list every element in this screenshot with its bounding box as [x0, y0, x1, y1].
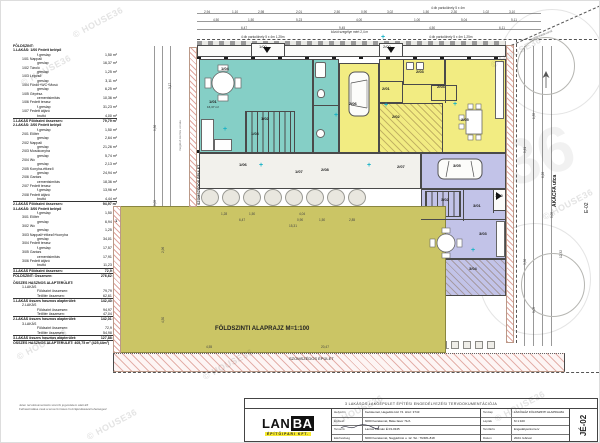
- project-title: 3 LAKÁSOS LAKÓÉPÜLET ÉPÍTÉSI ENGEDÉLYEZÉ…: [245, 399, 597, 409]
- dim-number: 1,00: [414, 18, 420, 22]
- room-label: 3/05: [453, 164, 461, 168]
- room-label: 1/02: [261, 117, 269, 121]
- pavement-texture: [197, 41, 506, 45]
- survey-cross-icon: +: [384, 103, 388, 108]
- drawing-sheet: FÖLDSZINT:1.LAKÁS: 1/00 Fedett belépőf.g…: [0, 0, 600, 443]
- washer-icon: [406, 62, 414, 70]
- room-label: 4 db parkolóhely 5 x 4m 1,25m: [429, 36, 473, 40]
- sheet-number: JÉ-02: [579, 415, 588, 436]
- sofa-icon: [201, 119, 214, 151]
- dim-number: 2,50: [334, 10, 340, 14]
- boundary-garden-left: [113, 206, 121, 353]
- north-arrow-icon: [539, 71, 553, 89]
- dim-number: 4,00: [356, 18, 362, 22]
- dim-number: 1,50: [319, 218, 325, 222]
- dim-number: 3,02: [387, 10, 393, 14]
- dim-number: 1,10: [232, 10, 238, 14]
- logo-text-ba: BA: [291, 416, 314, 431]
- titleblock-info-row: Elérhetőség6000 Kecskemét, Nagykőrösi u.…: [332, 435, 480, 443]
- room-label: 2/03: [416, 70, 424, 74]
- room-label: 16,37 m²: [207, 106, 219, 109]
- room-label: közút szegélye mért 2,4 m: [331, 31, 368, 35]
- survey-cross-icon: +: [223, 127, 227, 132]
- logo-text-lan: LAN: [262, 416, 290, 431]
- dim-number: 4,50: [213, 18, 219, 22]
- dim-number: 12,32: [559, 250, 563, 258]
- sheet-number-cell: JÉ-02: [570, 409, 597, 442]
- titleblock-meta-value: 2024. február: [512, 435, 569, 443]
- dim-number: 3,10: [509, 10, 515, 14]
- dining-table-icon: [429, 227, 463, 259]
- titleblock-info-value: Kecskemét, Hegedűs köz 74. Hrsz: 3743: [363, 409, 480, 417]
- room-label: 3/04: [469, 267, 477, 271]
- dim-number: 1,50: [248, 18, 254, 22]
- bush-icon: [243, 189, 261, 206]
- sink-icon: [316, 129, 325, 138]
- section-marker: 1: [115, 219, 117, 223]
- dim-number: 1,28: [221, 212, 227, 216]
- dim-number: 2,96: [161, 247, 165, 253]
- toilet-icon: [317, 89, 325, 98]
- wall: [445, 59, 446, 103]
- survey-cross-icon: +: [367, 163, 371, 168]
- dim-number: 5,23: [296, 18, 302, 22]
- signature-icon: [340, 423, 380, 431]
- room-2-01: [379, 81, 403, 103]
- boundary-line-bottom: [113, 372, 599, 373]
- sheet-edge-number: E-02: [585, 202, 591, 213]
- dim-number: 1,50: [249, 212, 255, 216]
- dim-number: 2,85: [349, 218, 355, 222]
- fence-right: [506, 45, 514, 343]
- wall: [421, 219, 506, 220]
- titleblock-meta-value: Engedélyezési terv: [512, 426, 569, 434]
- paver-icon: [475, 341, 483, 349]
- room-label: 4 db parkolóhely 5 x 4m: [431, 7, 465, 11]
- wall: [463, 189, 464, 221]
- room-label: 2/07: [397, 165, 405, 169]
- dim-line: [197, 29, 541, 30]
- titleblock-meta-row: TervfázisEngedélyezési terv: [481, 426, 569, 435]
- paver-icon: [487, 341, 495, 349]
- dim-number: 6,47: [241, 26, 247, 30]
- plan-title: FÖLDSZINTI ALAPRAJZ M=1:100: [215, 326, 309, 333]
- street-label: AKÁCFA utca: [553, 175, 559, 207]
- dim-number: 6,28: [541, 172, 545, 178]
- logo-subtitle: ÉPÍTŐIPARI KFT.: [265, 432, 311, 436]
- survey-cross-icon: +: [471, 248, 475, 253]
- dim-number: 5,61: [523, 147, 527, 153]
- room-label: 2/02: [392, 115, 400, 119]
- kitchen-counter: [495, 61, 504, 119]
- titleblock-meta-label: Tervfázis: [481, 426, 512, 434]
- neighbor-left-label: SZOMSZÉDOS ÉPÜLET: [198, 165, 202, 205]
- titleblock-info-value: Lantos Kálmán É 03-0345: [363, 426, 480, 434]
- bush-icon: [285, 189, 303, 206]
- room-label: 2/08: [321, 168, 329, 172]
- titleblock-meta-label: Dátum: [481, 435, 512, 443]
- dim-number: 15,31: [289, 224, 297, 228]
- room-label: 2/00: [383, 45, 391, 49]
- dim-number: 2,94: [204, 10, 210, 14]
- dim-number: 2,30: [451, 10, 457, 14]
- dim-number: 1,35: [532, 113, 536, 119]
- room-label: 1/06: [239, 163, 247, 167]
- bathtub-icon: [315, 62, 326, 78]
- bush-icon: [327, 189, 345, 206]
- room-label: 2/06: [349, 102, 357, 106]
- room-label: 1/03: [251, 132, 259, 136]
- terrace-band: [199, 153, 421, 189]
- room-label: 3/03: [479, 232, 487, 236]
- dim-number: 4,50: [429, 26, 435, 30]
- room-label: 1/07: [295, 170, 303, 174]
- room-label: 3/00: [495, 194, 503, 198]
- wall: [493, 189, 494, 213]
- room-label: 2/01: [382, 87, 390, 91]
- titleblock-info-value: 6000 Kecskemét, Béke fasor 71/A: [363, 418, 480, 426]
- dim-number: 3,17: [168, 83, 172, 89]
- dim-number: 5,11: [511, 18, 517, 22]
- titleblock-info-label: Elérhetőség: [332, 435, 363, 443]
- bush-icon: [348, 189, 366, 206]
- survey-cross-icon: +: [334, 113, 338, 118]
- dim-number: 6,11: [499, 26, 505, 30]
- dim-number: 4,55: [206, 345, 212, 349]
- dim-line: [197, 13, 541, 14]
- dim-number: 5,05: [153, 200, 157, 206]
- neighbor-bottom-strip: [113, 353, 565, 372]
- dim-number: 3,36: [523, 259, 527, 265]
- neighbor-bottom-label: SZOMSZÉDOS ÉPÜLET: [289, 357, 334, 361]
- room-label: 2/04: [437, 85, 445, 89]
- copyright-line: Felhasználása csak a tervező írásos hozz…: [19, 408, 139, 412]
- titleblock-info-value: 6000 Kecskemét, Nagykőrösi u. 12. Tel.: …: [363, 435, 480, 443]
- sofa-icon: [214, 139, 232, 151]
- pavement-top: [197, 45, 506, 57]
- copyright-note: Jelen tervdokumentáció szerzői jogvédele…: [19, 404, 139, 412]
- room-label: 3/02: [441, 198, 449, 202]
- titleblock-meta-value: M 1:100: [512, 418, 569, 426]
- dim-number: 9,45: [339, 26, 345, 30]
- dim-number: 1,50: [423, 10, 429, 14]
- wall: [313, 105, 339, 106]
- room-label: 1/00: [259, 45, 267, 49]
- dim-number: 0,90: [297, 218, 303, 222]
- dim-number: 2,98: [258, 10, 264, 14]
- room-label: 1/04: [221, 67, 229, 71]
- dim-number: 1,02: [483, 10, 489, 14]
- kitchen-counter: [496, 221, 505, 257]
- survey-cross-icon: +: [453, 102, 457, 107]
- survey-cross-icon: +: [381, 35, 385, 40]
- paver-icon: [463, 341, 471, 349]
- floor-plan: 36: [1, 1, 600, 443]
- bush-icon: [201, 189, 219, 206]
- boundary-left-wall: [189, 47, 197, 207]
- car-icon: [348, 71, 370, 117]
- bush-icon: [306, 189, 324, 206]
- dim-number: 2,01: [296, 10, 302, 14]
- dim-number: 20,47: [321, 345, 329, 349]
- room-label: 1/01: [209, 100, 217, 104]
- room-label: 4 db parkolóhely 5 x 4m 1,25m: [241, 36, 285, 40]
- bush-icon: [264, 189, 282, 206]
- company-logo: LAN BA ÉPÍTŐIPARI KFT.: [245, 409, 332, 442]
- bush-icon: [222, 189, 240, 206]
- paver-icon: [451, 341, 459, 349]
- car-icon: [437, 158, 483, 180]
- tree-icon: [521, 253, 585, 317]
- survey-cross-icon: +: [259, 163, 263, 168]
- dim-number: 4,50: [161, 317, 165, 323]
- dim-number: 4,04: [299, 212, 305, 216]
- room-label: meglévő kerítés vonala: [179, 120, 182, 151]
- dim-number: 9,36: [153, 125, 157, 131]
- title-block: 3 LAKÁSOS LAKÓÉPÜLET ÉPÍTÉSI ENGEDÉLYEZÉ…: [244, 398, 598, 442]
- room-label: 2/05: [461, 118, 469, 122]
- dim-number: 5,05: [532, 307, 536, 313]
- dim-number: 0,90: [361, 10, 367, 14]
- room-2-02: [379, 103, 443, 153]
- dim-number: 5,04: [461, 18, 467, 22]
- room-label: 3/01: [473, 204, 481, 208]
- dim-number: 6,47: [239, 218, 245, 222]
- titleblock-meta-row: Dátum2024. február: [481, 435, 569, 443]
